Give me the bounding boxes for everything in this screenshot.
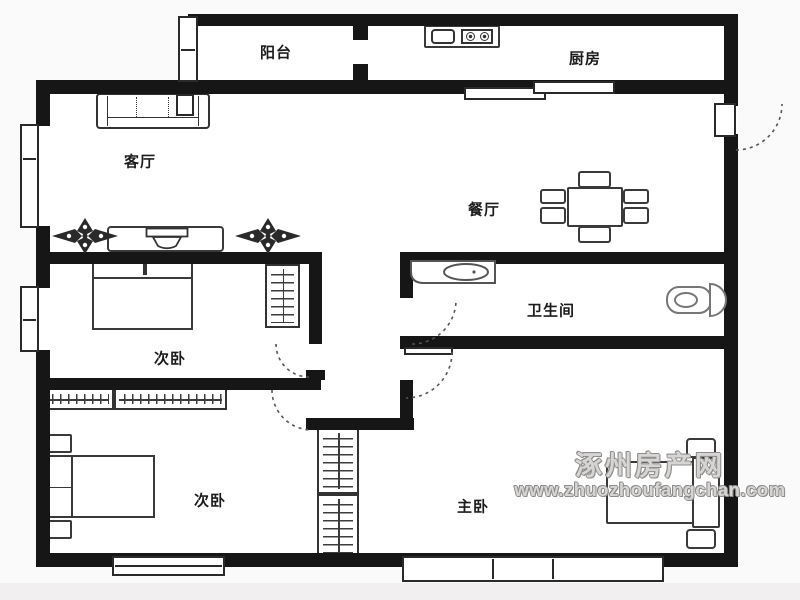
room-label-bedroom-lower: 次卧 [194,490,226,511]
closet [114,388,227,410]
window-divider [492,559,494,579]
nightstand [686,529,716,549]
master-bedroom-window [402,556,664,582]
tv-cabinet [107,226,224,252]
dining-chair [540,207,566,224]
kitchen-sliding-pane [533,81,615,94]
pillar [176,94,194,116]
window-divider [23,319,36,321]
dining-chair [623,189,649,204]
bathroom-door-leaf [404,347,453,355]
kitchen-sink-icon [431,29,455,44]
watermark-url: www.zhuozhoufangchan.com [500,480,800,499]
wardrobe [317,494,359,560]
window-divider [181,49,195,51]
background-band [0,583,800,600]
sofa-arm [107,96,108,126]
wall [36,378,321,390]
dining-chair [540,189,566,204]
wall [400,252,413,298]
wall [724,134,738,567]
burner-icon [466,32,475,41]
wall [400,252,736,264]
living-room-window [20,124,39,228]
watermark: 涿州房产网 www.zhuozhoufangchan.com [500,452,800,500]
bed [43,455,155,518]
burner-icon [480,32,489,41]
sofa-seat-line [108,117,198,118]
bed-headboard [94,264,191,279]
room-label-bedroom-upper: 次卧 [154,348,186,369]
window-divider [552,559,554,579]
bed [92,262,193,330]
entry-door-leaf [714,103,736,137]
closet [42,388,114,410]
room-label-master: 主卧 [457,496,489,517]
wall [306,418,414,430]
dining-table [567,187,623,227]
watermark-site-name: 涿州房产网 [500,452,800,480]
room-label-living: 客厅 [124,151,156,172]
window-divider [115,565,222,567]
dining-chair [578,171,611,188]
stove-icon [461,29,493,44]
sofa-cushion-divider [136,97,137,117]
window-divider [23,158,36,160]
dining-chair [623,207,649,224]
room-label-dining: 餐厅 [468,199,500,220]
sofa-arm [198,96,199,126]
wardrobe [265,264,300,328]
sofa-cushion-divider [168,97,169,117]
bedroom-lower-window [112,556,225,576]
wall [188,14,738,26]
floor-plan: 阳台 厨房 客厅 餐厅 次卧 卫生间 次卧 主卧 涿州房产网 www.zhuoz… [0,0,800,600]
dining-chair [578,226,611,243]
wardrobe [317,428,359,494]
bedroom-window-left [20,286,39,352]
balcony-window [178,16,198,82]
wall [36,80,738,94]
wall [400,380,413,430]
wall [36,252,322,264]
room-label-balcony: 阳台 [260,42,292,63]
room-label-bathroom: 卫生间 [527,300,575,321]
wall-stub [353,26,368,40]
kitchen-counter [424,25,500,48]
room-label-kitchen: 厨房 [569,48,601,69]
door-arc [736,104,782,150]
wall-stub [353,64,368,80]
wall [309,252,322,344]
